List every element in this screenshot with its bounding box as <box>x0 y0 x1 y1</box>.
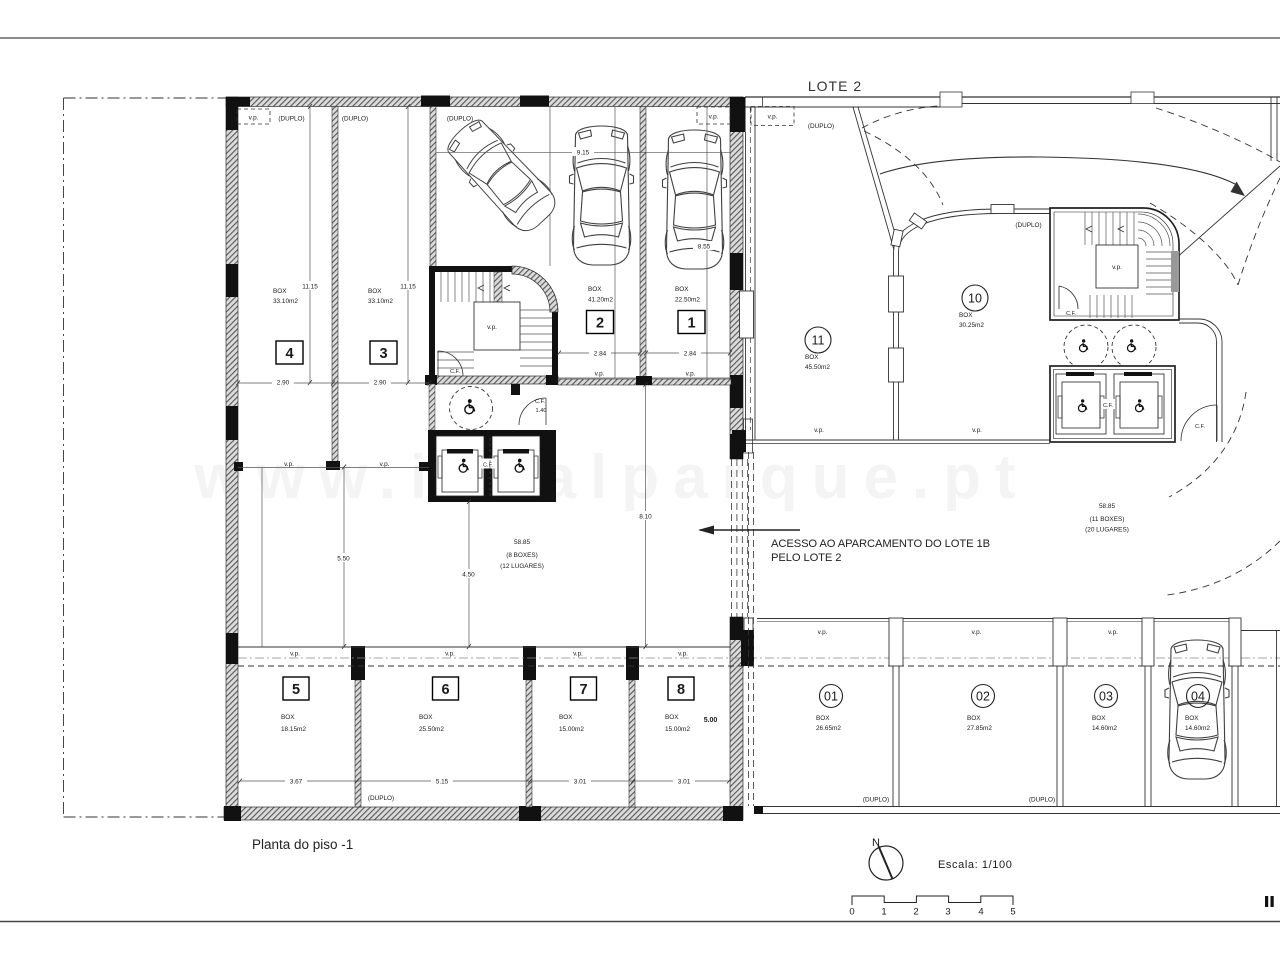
svg-text:26.65m2: 26.65m2 <box>816 725 841 732</box>
svg-text:14.60m2: 14.60m2 <box>1185 725 1210 732</box>
svg-text:C.F.: C.F. <box>1066 311 1076 317</box>
svg-text:(DUPLO): (DUPLO) <box>1015 222 1041 229</box>
svg-text:(11 BOXES): (11 BOXES) <box>1090 516 1125 523</box>
svg-text:3.01: 3.01 <box>678 779 691 786</box>
svg-text:30.25m2: 30.25m2 <box>959 322 984 329</box>
svg-text:2.90: 2.90 <box>277 380 290 387</box>
svg-text:BOX: BOX <box>959 312 973 319</box>
svg-text:2: 2 <box>596 315 604 331</box>
svg-text:(DUPLO): (DUPLO) <box>808 123 834 130</box>
svg-text:14.60m2: 14.60m2 <box>1092 725 1117 732</box>
svg-text:BOX: BOX <box>588 286 602 293</box>
svg-text:3: 3 <box>379 346 387 362</box>
svg-text:6: 6 <box>441 682 449 698</box>
svg-text:8.10: 8.10 <box>639 514 652 521</box>
svg-text:27.85m2: 27.85m2 <box>967 725 992 732</box>
svg-text:Escala: 1/100: Escala: 1/100 <box>938 859 1012 871</box>
svg-text:(DUPLO): (DUPLO) <box>863 797 889 804</box>
svg-text:v.p.: v.p. <box>818 629 828 636</box>
svg-text:3: 3 <box>945 907 950 918</box>
svg-text:C.F.: C.F. <box>483 463 493 469</box>
svg-text:58.85: 58.85 <box>514 539 530 546</box>
svg-text:3.01: 3.01 <box>574 779 587 786</box>
svg-text:v.p.: v.p. <box>686 371 696 378</box>
svg-text:22.50m2: 22.50m2 <box>675 297 700 304</box>
svg-text:5.15: 5.15 <box>436 779 449 786</box>
svg-text:5: 5 <box>292 682 300 698</box>
svg-text:LOTE 2: LOTE 2 <box>808 78 862 94</box>
svg-text:v.p.: v.p. <box>1112 264 1122 271</box>
svg-text:BOX: BOX <box>665 714 679 721</box>
svg-text:03: 03 <box>1099 690 1113 704</box>
svg-text:v.p.: v.p. <box>709 114 719 121</box>
svg-text:25.50m2: 25.50m2 <box>419 726 444 733</box>
svg-text:(20 LUGARES): (20 LUGARES) <box>1085 527 1129 534</box>
svg-text:v.p.: v.p. <box>678 651 688 658</box>
svg-text:(DUPLO): (DUPLO) <box>342 116 368 123</box>
svg-text:BOX: BOX <box>1185 715 1199 722</box>
svg-text:1: 1 <box>881 907 886 918</box>
svg-text:41.20m2: 41.20m2 <box>588 297 613 304</box>
svg-text:11.15: 11.15 <box>302 284 318 291</box>
svg-text:0: 0 <box>849 907 854 918</box>
svg-text:(8 BOXES): (8 BOXES) <box>506 552 538 559</box>
svg-text:v.p.: v.p. <box>380 461 390 468</box>
svg-text:8: 8 <box>677 682 685 698</box>
svg-text:(DUPLO): (DUPLO) <box>368 795 394 802</box>
svg-text:BOX: BOX <box>1092 715 1106 722</box>
svg-text:v.p.: v.p. <box>972 629 982 636</box>
svg-text:C.F.: C.F. <box>450 369 460 375</box>
svg-text:2.84: 2.84 <box>594 351 607 358</box>
svg-text:5: 5 <box>1010 907 1015 918</box>
svg-text:BOX: BOX <box>273 288 287 295</box>
svg-text:2.90: 2.90 <box>374 380 387 387</box>
svg-text:2.84: 2.84 <box>684 351 697 358</box>
svg-text:BOX: BOX <box>967 715 981 722</box>
svg-text:3.67: 3.67 <box>290 779 303 786</box>
svg-text:C.F.: C.F. <box>1195 424 1205 430</box>
svg-text:7: 7 <box>579 682 587 698</box>
svg-text:04: 04 <box>1191 690 1205 704</box>
svg-text:4.50: 4.50 <box>462 572 475 579</box>
svg-text:BOX: BOX <box>805 354 819 361</box>
svg-text:5.00: 5.00 <box>704 717 718 724</box>
svg-text:v.p.: v.p. <box>284 461 294 468</box>
svg-text:(DUPLO): (DUPLO) <box>1029 797 1055 804</box>
svg-text:v.p.: v.p. <box>814 427 824 434</box>
svg-text:ACESSO AO APARCAMENTO DO LOTE: ACESSO AO APARCAMENTO DO LOTE 1B <box>771 538 990 550</box>
svg-text:(12 LUGARES): (12 LUGARES) <box>500 563 544 570</box>
svg-text:15.00m2: 15.00m2 <box>559 726 584 733</box>
svg-text:v.p.: v.p. <box>290 651 300 658</box>
svg-text:BOX: BOX <box>559 714 573 721</box>
svg-text:02: 02 <box>976 690 990 704</box>
svg-text:BOX: BOX <box>816 715 830 722</box>
svg-text:4: 4 <box>285 346 293 362</box>
svg-text:v.p.: v.p. <box>487 324 497 331</box>
svg-text:2: 2 <box>913 907 918 918</box>
svg-text:8.55: 8.55 <box>698 244 711 251</box>
svg-text:33.10m2: 33.10m2 <box>368 298 393 305</box>
svg-text:(DUPLO): (DUPLO) <box>447 116 473 123</box>
svg-text:N: N <box>872 837 880 849</box>
svg-text:www.idealparque.pt: www.idealparque.pt <box>193 443 1029 512</box>
svg-text:11.15: 11.15 <box>400 284 416 291</box>
svg-text:(DUPLO): (DUPLO) <box>278 116 304 123</box>
svg-text:1: 1 <box>687 315 695 331</box>
svg-text:v.p.: v.p. <box>1108 629 1118 636</box>
svg-text:15.00m2: 15.00m2 <box>665 726 690 733</box>
svg-text:9.15: 9.15 <box>577 150 590 157</box>
svg-text:v.p.: v.p. <box>972 427 982 434</box>
svg-text:58.85: 58.85 <box>1099 503 1115 510</box>
svg-text:v.p.: v.p. <box>573 651 583 658</box>
svg-text:v.p.: v.p. <box>249 115 259 122</box>
svg-text:01: 01 <box>824 690 838 704</box>
svg-text:18.15m2: 18.15m2 <box>281 726 306 733</box>
svg-text:BOX: BOX <box>419 714 433 721</box>
svg-text:5.50: 5.50 <box>337 556 350 563</box>
svg-text:33.10m2: 33.10m2 <box>273 298 298 305</box>
svg-text:1.40: 1.40 <box>536 408 547 414</box>
svg-text:C.F.: C.F. <box>1103 403 1113 409</box>
svg-text:v.p.: v.p. <box>595 371 605 378</box>
svg-text:45.50m2: 45.50m2 <box>805 364 830 371</box>
svg-text:11: 11 <box>812 334 825 348</box>
svg-text:BOX: BOX <box>281 714 295 721</box>
svg-text:BOX: BOX <box>675 286 689 293</box>
svg-text:PELO LOTE 2: PELO LOTE 2 <box>771 552 841 564</box>
svg-text:10: 10 <box>968 292 982 306</box>
svg-text:v.p.: v.p. <box>445 651 455 658</box>
svg-text:4: 4 <box>978 907 983 918</box>
svg-text:BOX: BOX <box>368 288 382 295</box>
svg-text:Planta do piso -1: Planta do piso -1 <box>252 837 353 852</box>
svg-text:C.F.: C.F. <box>535 399 545 405</box>
svg-text:v.p.: v.p. <box>768 114 778 121</box>
